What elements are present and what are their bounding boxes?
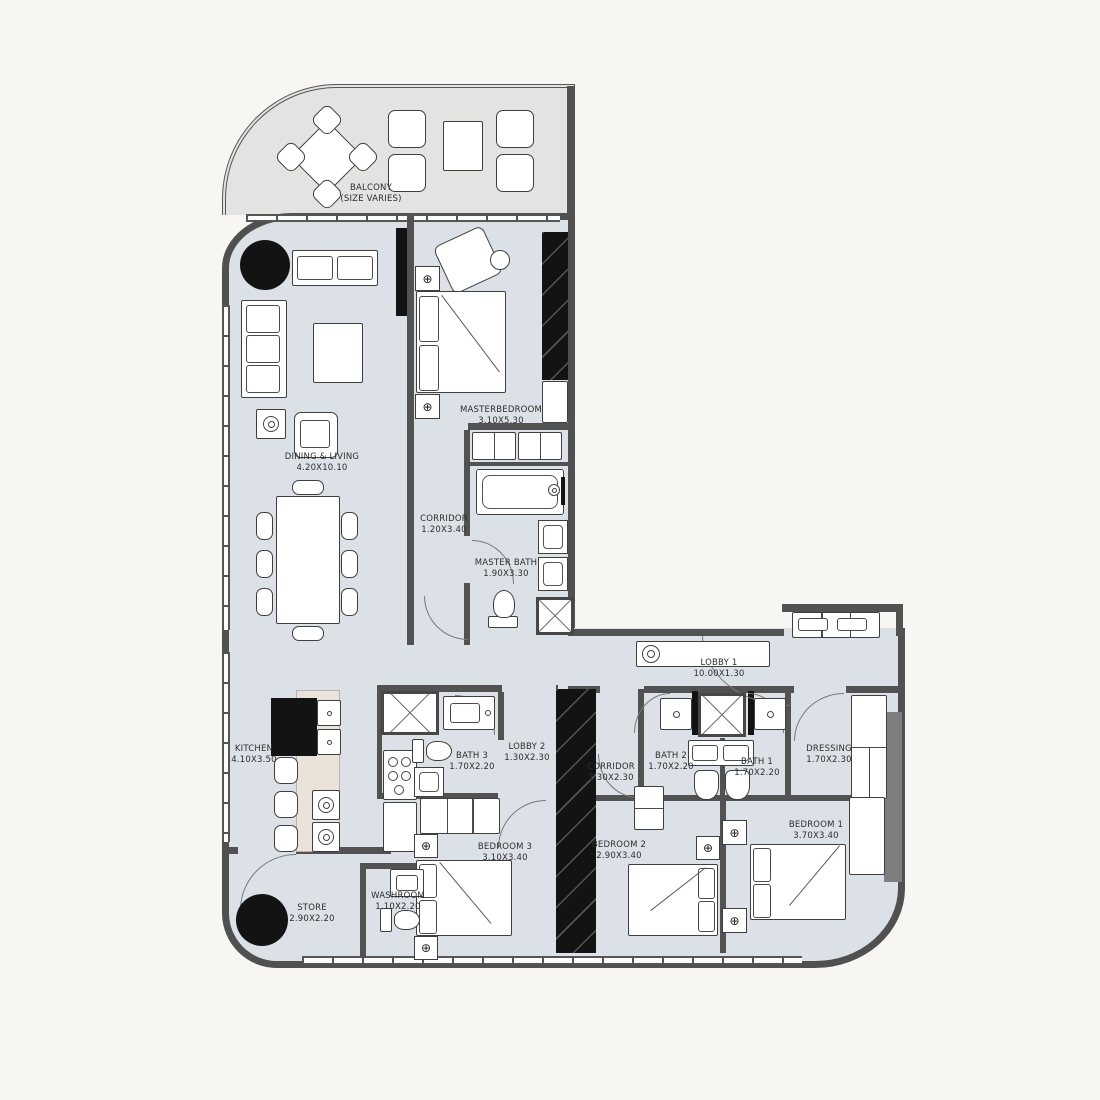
kitchen-cabinet xyxy=(383,802,417,852)
room-name: WASHROOM xyxy=(371,891,425,902)
room-label-washroom: WASHROOM 1.10X2.20 xyxy=(371,891,425,913)
bedroom-closet xyxy=(634,786,664,830)
window-wall-top xyxy=(246,214,560,222)
window-seat xyxy=(849,797,885,875)
toilet-bowl xyxy=(426,741,452,761)
room-name: BATH 2 xyxy=(648,751,693,762)
room-name: CORRIDOR xyxy=(587,762,635,773)
bathroom-sink xyxy=(414,767,444,797)
bathtub-faucet-icon xyxy=(548,484,560,496)
balcony-lounge-chair xyxy=(496,110,534,148)
shower xyxy=(698,693,746,737)
table-lamp-icon xyxy=(263,416,279,432)
room-label-dressing: DRESSING 1.70X2.30 xyxy=(806,744,852,766)
ottoman xyxy=(490,250,510,270)
room-name: DRESSING xyxy=(806,744,852,755)
room-name: DINING & LIVING xyxy=(285,452,359,463)
shower xyxy=(536,597,574,635)
pillow xyxy=(698,901,715,932)
room-label-masterbedroom: MASTERBEDROOM 3.10X5.30 xyxy=(460,405,542,427)
room-dims: (SIZE VARIES) xyxy=(340,194,401,205)
nightstand: ⊕ xyxy=(696,836,720,860)
bathroom-sink xyxy=(660,698,692,730)
wall-bath3-lobby2 xyxy=(498,692,504,740)
room-dims: 1.30X2.30 xyxy=(587,773,635,784)
room-name: MASTER BATH xyxy=(475,558,538,569)
window-wall-left-lower xyxy=(222,652,230,842)
window-wall-bottom xyxy=(302,956,802,965)
nightstand: ⊕ xyxy=(414,834,438,858)
wall-jamb-masterbedroom xyxy=(396,228,407,316)
bathroom-sink xyxy=(443,696,495,730)
appliance-icon xyxy=(318,829,334,845)
room-label-store: STORE 2.90X2.20 xyxy=(289,903,334,925)
dining-chair xyxy=(341,550,358,578)
wall-lobby1-top xyxy=(568,629,784,636)
lamp-icon: ⊕ xyxy=(703,842,713,854)
nightstand: ⊕ xyxy=(415,266,440,291)
room-label-kitchen: KITCHEN 4.10X3.50 xyxy=(231,744,276,766)
room-name: BEDROOM 1 xyxy=(789,820,843,831)
dining-chair xyxy=(256,550,273,578)
room-dims: 1.70X2.20 xyxy=(734,768,779,779)
dressing-wardrobe xyxy=(851,695,887,799)
room-dims: 1.70X2.30 xyxy=(806,755,852,766)
sofa-three-seat xyxy=(241,300,287,398)
room-dims: 4.10X3.50 xyxy=(231,755,276,766)
decor-icon xyxy=(642,645,660,663)
dining-chair xyxy=(341,512,358,540)
closet xyxy=(472,432,516,460)
lamp-icon: ⊕ xyxy=(421,840,431,852)
room-label-bedroom-1: BEDROOM 1 3.70X3.40 xyxy=(789,820,843,842)
room-dims: 10.00X1.30 xyxy=(693,669,744,680)
dining-chair xyxy=(292,626,324,641)
room-label-dining-living: DINING & LIVING 4.20X10.10 xyxy=(285,452,359,474)
room-label-lobby-1: LOBBY 1 10.00X1.30 xyxy=(693,658,744,680)
room-dims: 4.20X10.10 xyxy=(285,463,359,474)
wall-closet-tub xyxy=(470,462,575,466)
balcony-lounge-chair xyxy=(496,154,534,192)
master-wardrobe xyxy=(542,232,568,380)
pillow xyxy=(753,848,771,882)
lamp-icon: ⊕ xyxy=(729,915,739,927)
room-label-master-bath: MASTER BATH 1.90X3.30 xyxy=(475,558,538,580)
kitchen-sink xyxy=(317,729,341,755)
bar-stool xyxy=(274,825,298,852)
structural-column xyxy=(240,240,290,290)
dining-table xyxy=(276,496,340,624)
nightstand: ⊕ xyxy=(722,820,747,845)
room-dims: 1.10X2.20 xyxy=(371,902,425,913)
bathtub-faucet-bar xyxy=(561,477,565,505)
room-label-corridor-1: CORRIDOR 1.20X3.40 xyxy=(420,514,468,536)
wall-entrance-top xyxy=(782,604,903,612)
entry-bench xyxy=(792,612,880,638)
wall-living-masterbedroom xyxy=(407,215,414,645)
wardrobe-shaft-column xyxy=(556,689,596,953)
room-dims: 3.10X3.40 xyxy=(478,853,532,864)
room-label-bath-1: BATH 1 1.70X2.20 xyxy=(734,757,779,779)
kitchen-island-black xyxy=(271,698,317,756)
dining-chair xyxy=(256,588,273,616)
lamp-icon: ⊕ xyxy=(421,942,431,954)
toilet-tank xyxy=(412,739,424,763)
pillow xyxy=(698,868,715,899)
room-name: BALCONY xyxy=(340,183,401,194)
opening-lobby2 xyxy=(502,685,556,692)
pillow xyxy=(419,345,439,391)
bedroom-dresser xyxy=(420,798,500,834)
room-label-corridor-2: CORRIDOR 1.30X2.30 xyxy=(587,762,635,784)
room-name: MASTERBEDROOM xyxy=(460,405,542,416)
structural-column xyxy=(236,894,288,946)
room-name: BEDROOM 2 xyxy=(592,840,646,851)
room-label-bath-2: BATH 2 1.70X2.20 xyxy=(648,751,693,773)
lamp-icon: ⊕ xyxy=(422,401,432,413)
nightstand: ⊕ xyxy=(722,908,747,933)
room-label-bedroom-3: BEDROOM 3 3.10X3.40 xyxy=(478,842,532,864)
bathroom-sink xyxy=(538,520,568,554)
bathroom-sink xyxy=(754,698,786,730)
window-wall-left-upper xyxy=(222,305,230,630)
room-dims: 2.90X3.40 xyxy=(592,851,646,862)
opening-dressing-door xyxy=(794,686,846,693)
floor-plan: ⊕ ⊕ xyxy=(0,0,1100,1100)
pillow xyxy=(419,296,439,342)
room-label-bath-3: BATH 3 1.70X2.20 xyxy=(449,751,494,773)
room-name: BEDROOM 3 xyxy=(478,842,532,853)
room-name: STORE xyxy=(289,903,334,914)
sofa-two-seat xyxy=(292,250,378,286)
room-dims: 1.30X2.30 xyxy=(504,753,549,764)
room-name: CORRIDOR xyxy=(420,514,468,525)
wall-washroom-left xyxy=(360,863,366,958)
room-dims: 1.90X3.30 xyxy=(475,569,538,580)
toilet-bowl xyxy=(493,590,515,618)
room-name: BATH 1 xyxy=(734,757,779,768)
room-dims: 3.70X3.40 xyxy=(789,831,843,842)
room-dims: 3.10X5.30 xyxy=(460,416,542,427)
shower xyxy=(381,691,439,735)
kitchen-sink xyxy=(317,700,341,726)
dining-chair xyxy=(256,512,273,540)
room-name: LOBBY 2 xyxy=(504,742,549,753)
lamp-icon: ⊕ xyxy=(729,827,739,839)
balcony-right-wall xyxy=(567,86,575,215)
room-name: KITCHEN xyxy=(231,744,276,755)
room-dims: 1.70X2.20 xyxy=(449,762,494,773)
coffee-table xyxy=(313,323,363,383)
room-dims: 2.90X2.20 xyxy=(289,914,334,925)
appliance-icon xyxy=(318,797,334,813)
balcony-side-table xyxy=(443,121,483,171)
closet xyxy=(518,432,562,460)
master-shelf xyxy=(542,381,568,423)
bar-stool xyxy=(274,791,298,818)
wall-entrance-stub xyxy=(896,604,903,636)
toilet xyxy=(694,770,719,800)
bathroom-sink xyxy=(538,557,568,591)
bar-stool xyxy=(274,757,298,784)
nightstand: ⊕ xyxy=(415,394,440,419)
room-label-lobby-2: LOBBY 2 1.30X2.30 xyxy=(504,742,549,764)
dining-chair xyxy=(341,588,358,616)
room-label-bedroom-2: BEDROOM 2 2.90X3.40 xyxy=(592,840,646,862)
lamp-icon: ⊕ xyxy=(422,273,432,285)
room-dims: 1.70X2.20 xyxy=(648,762,693,773)
nightstand: ⊕ xyxy=(414,936,438,960)
room-name: BATH 3 xyxy=(449,751,494,762)
room-label-balcony: BALCONY (SIZE VARIES) xyxy=(340,183,401,205)
dining-chair xyxy=(292,480,324,495)
balcony-lounge-chair xyxy=(388,110,426,148)
room-dims: 1.20X3.40 xyxy=(420,525,468,536)
pillow xyxy=(753,884,771,918)
room-name: LOBBY 1 xyxy=(693,658,744,669)
